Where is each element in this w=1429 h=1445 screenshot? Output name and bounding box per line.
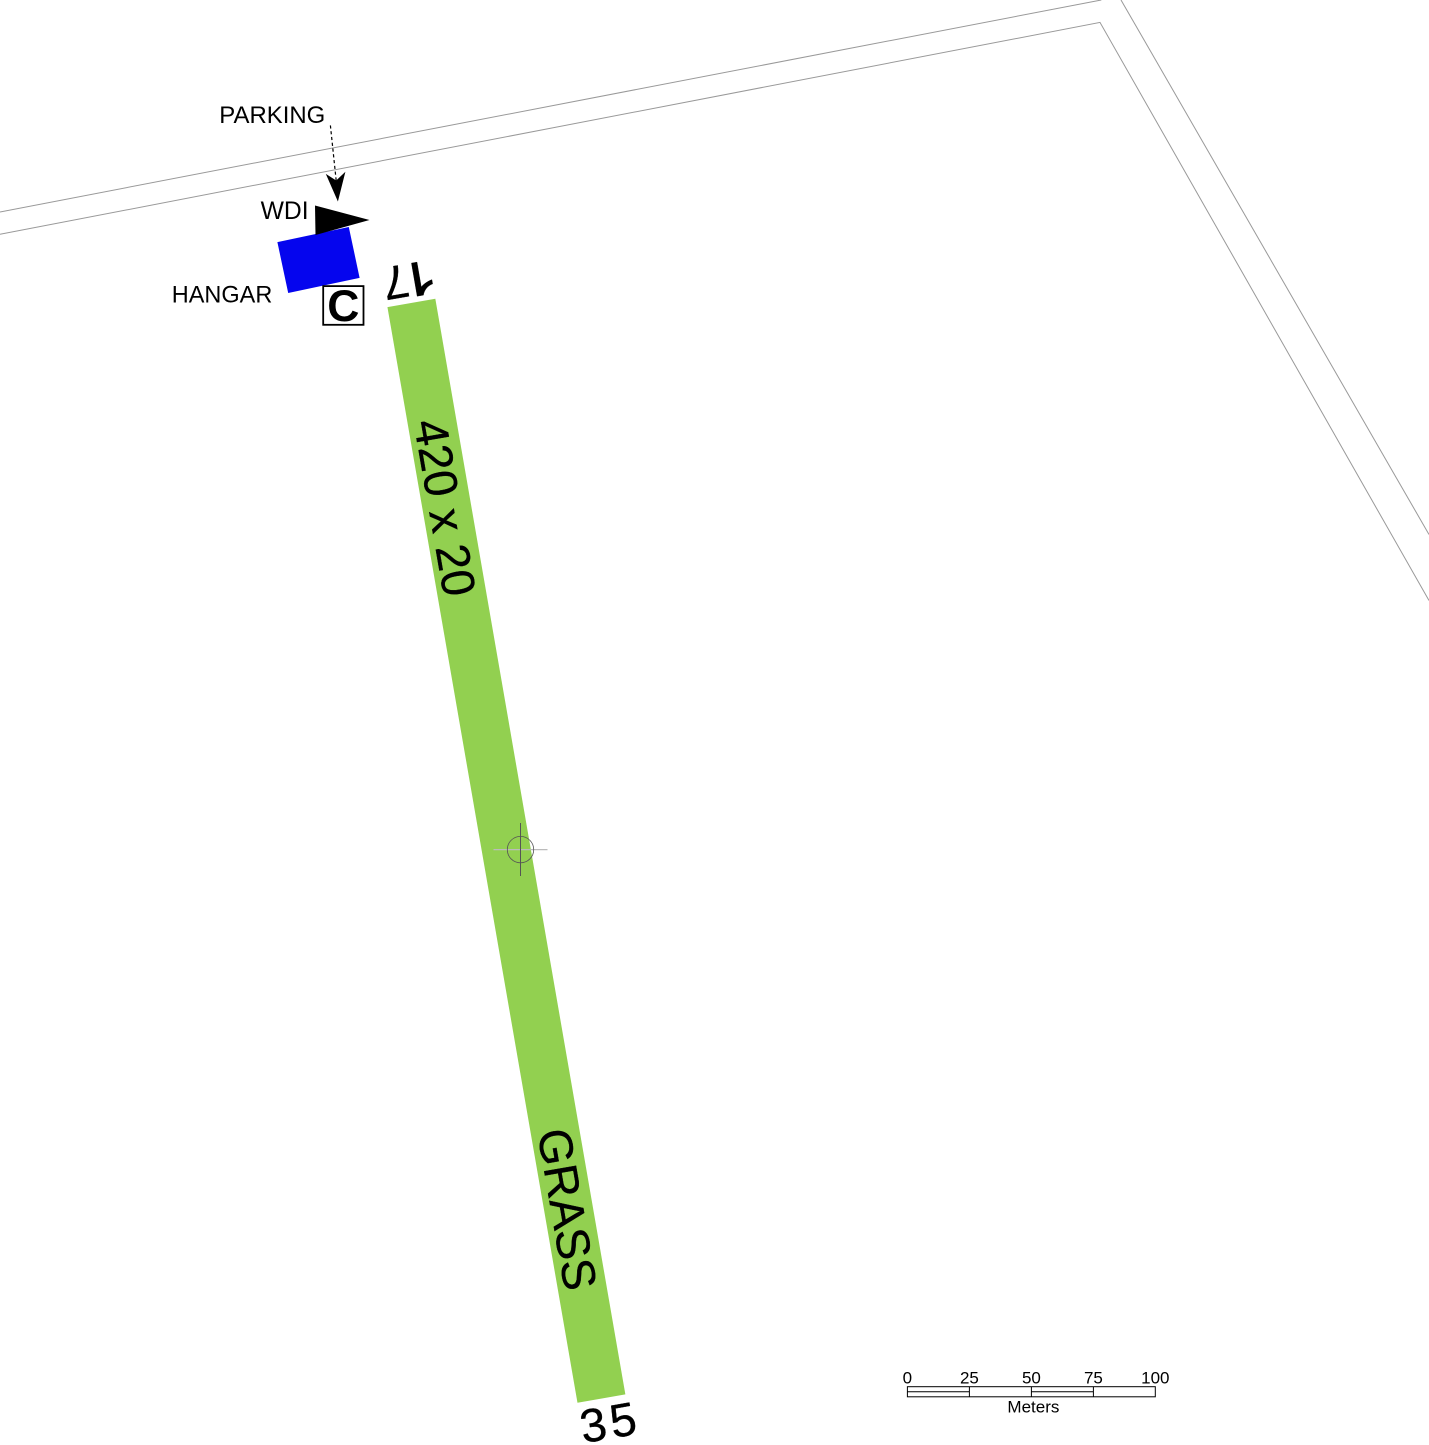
svg-text:100: 100 (1141, 1369, 1169, 1388)
svg-text:420 x 20: 420 x 20 (404, 415, 487, 600)
svg-text:50: 50 (1022, 1369, 1041, 1388)
svg-text:GRASS: GRASS (527, 1124, 607, 1294)
svg-text:Meters: Meters (1007, 1398, 1059, 1417)
svg-text:7: 7 (378, 254, 413, 311)
svg-text:35: 35 (576, 1391, 644, 1445)
svg-text:75: 75 (1084, 1369, 1103, 1388)
svg-text:C: C (327, 282, 359, 331)
svg-text:WDI: WDI (261, 197, 309, 225)
svg-text:0: 0 (903, 1369, 912, 1388)
svg-text:HANGAR: HANGAR (172, 281, 272, 308)
svg-text:PARKING: PARKING (219, 102, 325, 129)
svg-text:25: 25 (960, 1369, 979, 1388)
